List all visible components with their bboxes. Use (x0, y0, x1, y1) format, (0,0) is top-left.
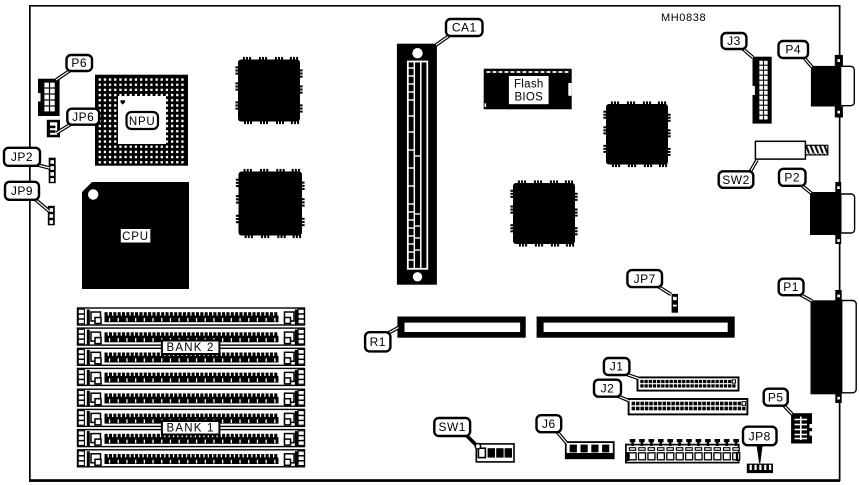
svg-text:BANK 1: BANK 1 (167, 423, 215, 435)
svg-text:SW1: SW1 (438, 420, 466, 434)
svg-text:CPU: CPU (122, 231, 149, 243)
svg-text:P2: P2 (784, 171, 800, 185)
svg-text:BANK 2: BANK 2 (167, 342, 215, 354)
svg-text:CA1: CA1 (452, 21, 477, 35)
svg-text:JP8: JP8 (749, 429, 771, 443)
svg-text:J1: J1 (610, 360, 624, 374)
svg-text:R1: R1 (370, 335, 386, 349)
svg-text:P6: P6 (71, 56, 87, 70)
svg-text:SW2: SW2 (722, 173, 750, 187)
svg-text:P5: P5 (768, 390, 784, 404)
svg-text:JP9: JP9 (11, 184, 33, 198)
svg-text:BIOS: BIOS (514, 92, 543, 104)
svg-text:P1: P1 (783, 280, 799, 294)
svg-text:NPU: NPU (129, 116, 156, 128)
svg-text:J6: J6 (542, 417, 556, 431)
svg-text:JP7: JP7 (634, 272, 656, 286)
svg-text:J2: J2 (601, 381, 615, 395)
svg-text:J3: J3 (727, 34, 741, 48)
svg-text:Flash: Flash (514, 78, 544, 90)
svg-text:JP6: JP6 (72, 110, 94, 124)
svg-text:P4: P4 (785, 43, 801, 57)
svg-text:MH0838: MH0838 (661, 12, 706, 24)
svg-text:JP2: JP2 (11, 150, 33, 164)
